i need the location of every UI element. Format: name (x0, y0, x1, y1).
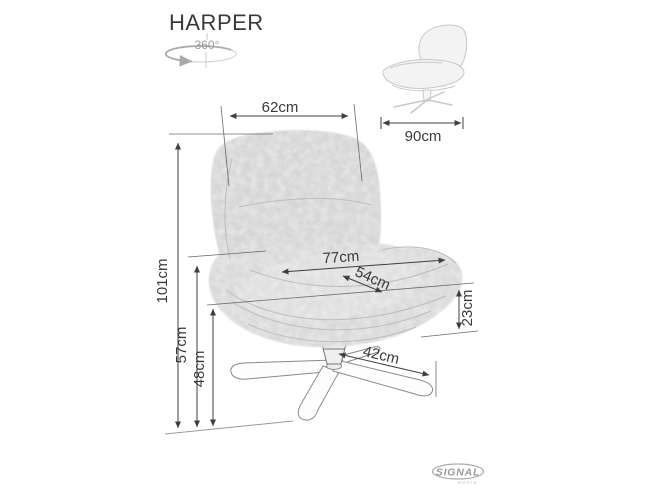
rotate-360-icon: 360° (166, 33, 236, 68)
diagram-canvas: HARPER 360° 90cm (0, 0, 650, 497)
dimension-label-overall-width: 77cm (322, 248, 360, 268)
dimension-label-seat-height: 48cm (191, 351, 208, 388)
page-title: HARPER (169, 10, 264, 35)
dimension-label-depth: 90cm (405, 128, 442, 145)
floor-line (165, 421, 293, 434)
main-chair-illustration (165, 122, 472, 434)
dimension-depth: 90cm (381, 117, 463, 145)
dimension-label-armrest-height: 57cm (173, 327, 190, 364)
rotation-degrees-label: 360° (195, 38, 220, 52)
dimension-label-base-span: 42cm (361, 343, 401, 368)
brand-tagline: meble (458, 480, 478, 485)
product-dimension-diagram: HARPER 360° 90cm (0, 0, 650, 497)
dimension-label-seat-edge-height: 23cm (459, 290, 476, 327)
dimension-label-total-height: 101cm (154, 258, 171, 303)
signal-logo: SIGNAL meble (433, 464, 484, 485)
side-view-chair-illustration (383, 25, 467, 113)
brand-name: SIGNAL (436, 467, 480, 479)
thumb-seat (383, 59, 464, 88)
dimension-label-back-width: 62cm (262, 99, 299, 116)
